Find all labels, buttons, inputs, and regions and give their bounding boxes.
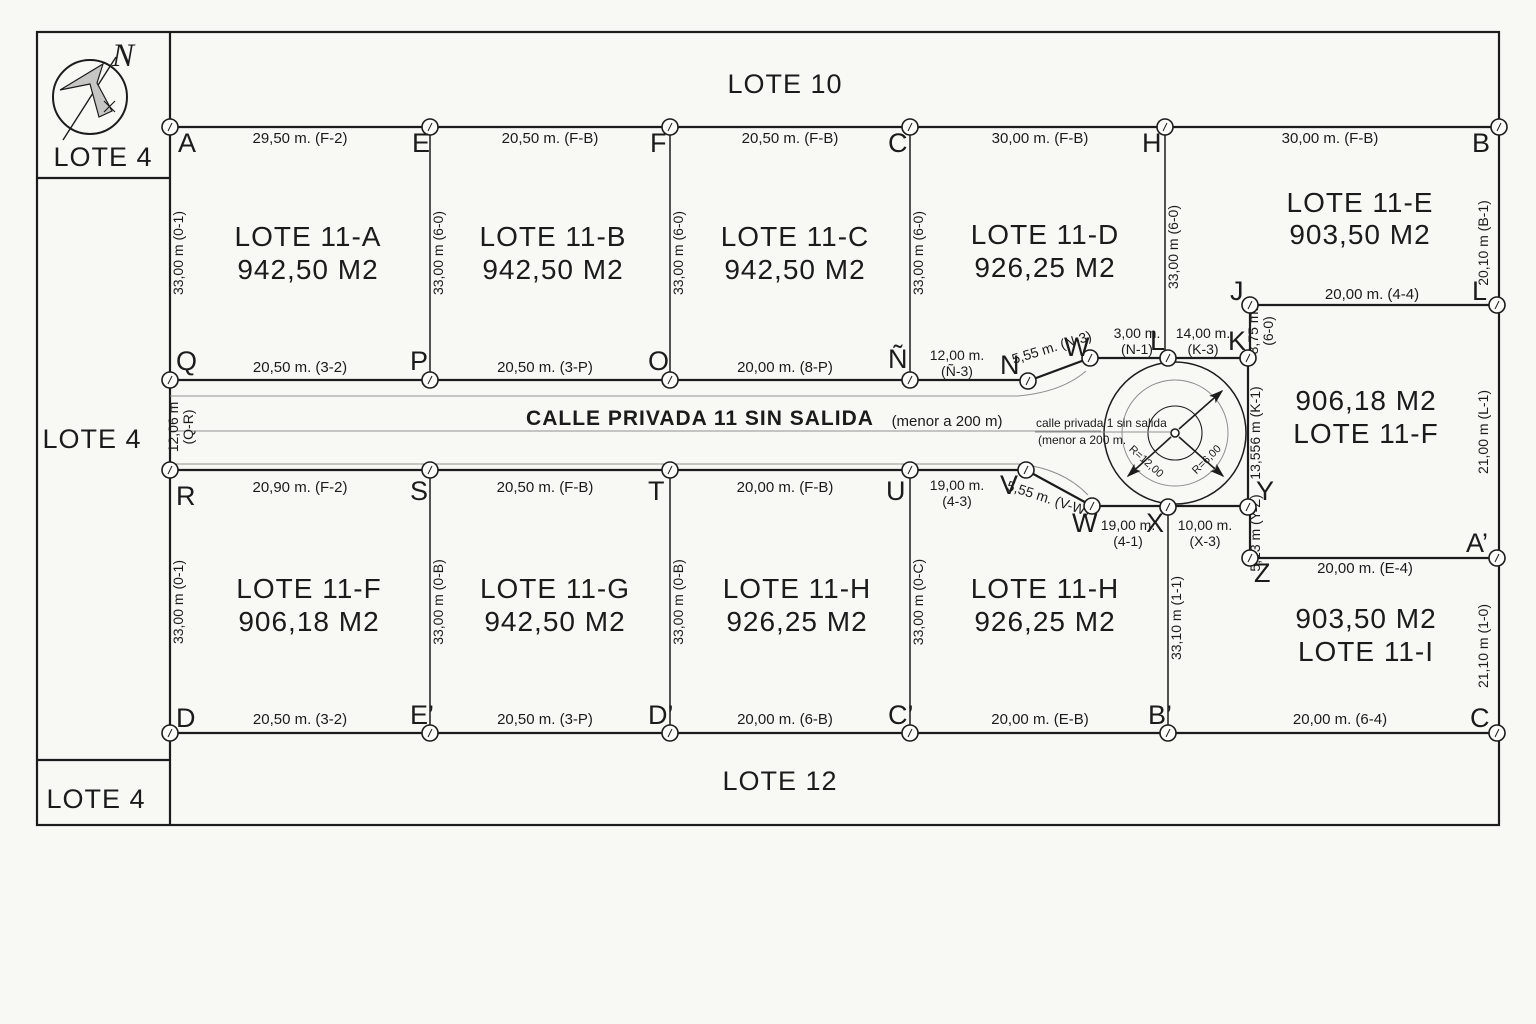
- dim-lk-line2: (K-3): [1187, 341, 1218, 357]
- dim-c-bot: 20,00 m. (8-P): [737, 359, 833, 376]
- dim-wl-line2: (N-1): [1121, 341, 1153, 357]
- lot-d-name: LOTE 11-D: [971, 219, 1120, 250]
- vertex-E: E: [412, 128, 430, 158]
- lot-g-name: LOTE 11-G: [480, 573, 630, 604]
- lot-f-name: LOTE 11-F: [236, 573, 381, 604]
- dim-g-bot: 20,50 m. (3-P): [497, 711, 593, 728]
- lot-fright-name: LOTE 11-F: [1293, 418, 1438, 449]
- vertex-A: A: [178, 128, 196, 158]
- dim-g-top: 20,50 m. (F-B): [497, 479, 594, 496]
- vertex-J: J: [1230, 276, 1244, 306]
- vertex-P: P: [410, 346, 428, 376]
- lot-i-name: LOTE 11-I: [1298, 636, 1434, 667]
- dim-wx-line2: (4-1): [1113, 533, 1143, 549]
- lote4-bottom-label: LOTE 4: [46, 784, 145, 814]
- vertex-E-prime: E’: [410, 700, 434, 730]
- dim-e-top: 30,00 m. (F-B): [1282, 130, 1379, 147]
- north-label: N: [111, 38, 136, 74]
- vertex-B: B: [1472, 128, 1490, 158]
- vertex-R: R: [176, 481, 196, 511]
- lot-i-area: 903,50 M2: [1295, 603, 1436, 634]
- lot-f-area: 906,18 M2: [238, 606, 379, 637]
- dim-b-left: 33,00 m (6-0): [430, 211, 446, 295]
- dim-c-top: 20,50 m. (F-B): [742, 130, 839, 147]
- lot-fright-area: 906,18 M2: [1295, 385, 1436, 416]
- vertex-W-upper: W: [1064, 332, 1090, 362]
- dim-f-top: 20,90 m. (F-2): [252, 479, 347, 496]
- vertex-A-prime: A’: [1466, 528, 1488, 558]
- lot-h1-area: 926,25 M2: [726, 606, 867, 637]
- vertex-C-bottomright: C: [1470, 703, 1490, 733]
- vertex-C: C: [888, 128, 908, 158]
- vertex-Y: Y: [1256, 476, 1274, 506]
- vertex-S: S: [410, 476, 428, 506]
- vertex-C-prime: C’: [888, 700, 914, 730]
- lot-c-area: 942,50 M2: [724, 254, 865, 285]
- lot-h2-area: 926,25 M2: [974, 606, 1115, 637]
- vertex-L-mid: L: [1150, 326, 1165, 356]
- dim-c-left: 33,00 m (6-0): [670, 211, 686, 295]
- plat-page: R=12,00 R=6,00 N LOTE 10 LOTE 12 LOTE 4 …: [0, 0, 1536, 1024]
- street-width-dim-ref: (Q-R): [180, 410, 196, 445]
- vertex-X: X: [1146, 508, 1164, 538]
- dim-n-line2: (Ñ-3): [941, 363, 973, 379]
- vertex-D-prime: D’: [648, 700, 674, 730]
- lote12-label: LOTE 12: [722, 766, 837, 796]
- plat-drawing: R=12,00 R=6,00 N LOTE 10 LOTE 12 LOTE 4 …: [0, 0, 1536, 1024]
- vertex-U: U: [886, 476, 906, 506]
- dim-xb-left: 33,10 m (1-1): [1168, 576, 1184, 660]
- dim-xy-line1: 10,00 m.: [1178, 517, 1232, 533]
- dim-a-bot: 20,50 m. (3-2): [253, 359, 347, 376]
- lot-c-name: LOTE 11-C: [721, 221, 870, 252]
- dim-lk-line1: 14,00 m.: [1176, 325, 1230, 341]
- lot-h2-name: LOTE 11-H: [971, 573, 1120, 604]
- dim-b-top: 20,50 m. (F-B): [502, 130, 599, 147]
- dim-n-line1: 12,00 m.: [930, 347, 984, 363]
- lot-a-area: 942,50 M2: [237, 254, 378, 285]
- vertex-T: T: [648, 476, 665, 506]
- vertex-K: K: [1228, 326, 1246, 356]
- culdesac-center-point: [1171, 429, 1179, 437]
- lot-a-name: LOTE 11-A: [235, 221, 382, 252]
- vertex-V: V: [1000, 470, 1018, 500]
- street-width-dim-value: 12,06 m: [165, 402, 181, 453]
- vertex-D: D: [176, 703, 196, 733]
- lote4-top-label: LOTE 4: [53, 142, 152, 172]
- lot-b-area: 942,50 M2: [482, 254, 623, 285]
- dim-fright-right: 21,00 m (L-1): [1475, 390, 1491, 474]
- lote10-label: LOTE 10: [727, 69, 842, 99]
- dim-ky: 13,556 m (K-1): [1247, 386, 1263, 479]
- vertex-Q: Q: [176, 346, 197, 376]
- lot-g-area: 942,50 M2: [484, 606, 625, 637]
- dim-uv-line2: (4-3): [942, 493, 972, 509]
- dim-a-top: 29,50 m. (F-2): [252, 130, 347, 147]
- vertex-Z: Z: [1254, 558, 1271, 588]
- dim-i-bot: 20,00 m. (6-4): [1293, 711, 1387, 728]
- vertex-B-prime: B’: [1148, 700, 1172, 730]
- street-limit-note: (menor a 200 m): [892, 413, 1003, 430]
- dim-d-top: 30,00 m. (F-B): [992, 130, 1089, 147]
- dim-e-left: 33,00 m (6-0): [1165, 205, 1181, 289]
- lot-h1-name: LOTE 11-H: [723, 573, 872, 604]
- dim-bl-right: 20,10 m (B-1): [1475, 200, 1491, 286]
- lot-b-name: LOTE 11-B: [480, 221, 627, 252]
- lot-e-name: LOTE 11-E: [1287, 187, 1434, 218]
- vertex-O: O: [648, 346, 669, 376]
- vertex-H: H: [1142, 128, 1162, 158]
- lote4-mid-label: LOTE 4: [42, 424, 141, 454]
- dim-f-bot: 20,50 m. (3-2): [253, 711, 347, 728]
- dim-a-left: 33,00 m (0-1): [170, 211, 186, 295]
- dim-xy-line2: (X-3): [1189, 533, 1220, 549]
- vertex-N: N: [1000, 350, 1020, 380]
- dim-jk-line1: 8,75 m.: [1245, 308, 1261, 355]
- dim-jl-top: 20,00 m. (4-4): [1325, 286, 1419, 303]
- street-name: CALLE PRIVADA 11 SIN SALIDA: [526, 407, 874, 430]
- dim-b-bot: 20,50 m. (3-P): [497, 359, 593, 376]
- lot-d-area: 926,25 M2: [974, 252, 1115, 283]
- dim-d-left: 33,00 m (6-0): [910, 211, 926, 295]
- dim-i-right: 21,10 m (1-0): [1475, 604, 1491, 688]
- vertex-F: F: [650, 128, 667, 158]
- vertex-L-right: L: [1472, 276, 1487, 306]
- lot-e-area: 903,50 M2: [1289, 219, 1430, 250]
- dim-f-left: 33,00 m (0-1): [170, 560, 186, 644]
- dim-h1-left: 33,00 m (0-B): [670, 559, 686, 645]
- vertex-W-lower: W: [1072, 508, 1098, 538]
- dim-jk-line2: (6-0): [1260, 316, 1276, 346]
- dim-za: 20,00 m. (E-4): [1317, 560, 1413, 577]
- dim-h2-bot: 20,00 m. (E-B): [991, 711, 1089, 728]
- street-small-note-1: calle privada 1 sin salida: [1036, 416, 1167, 430]
- dim-uv-line1: 19,00 m.: [930, 477, 984, 493]
- background: [0, 0, 1536, 1024]
- dim-h2-left: 33,00 m (0-C): [910, 559, 926, 645]
- dim-h1-top: 20,00 m. (F-B): [737, 479, 834, 496]
- vertex-Ntilde: Ñ: [888, 343, 908, 374]
- dim-g-left: 33,00 m (0-B): [430, 559, 446, 645]
- dim-h1-bot: 20,00 m. (6-B): [737, 711, 833, 728]
- street-small-note-2: (menor a 200 m.: [1038, 433, 1126, 447]
